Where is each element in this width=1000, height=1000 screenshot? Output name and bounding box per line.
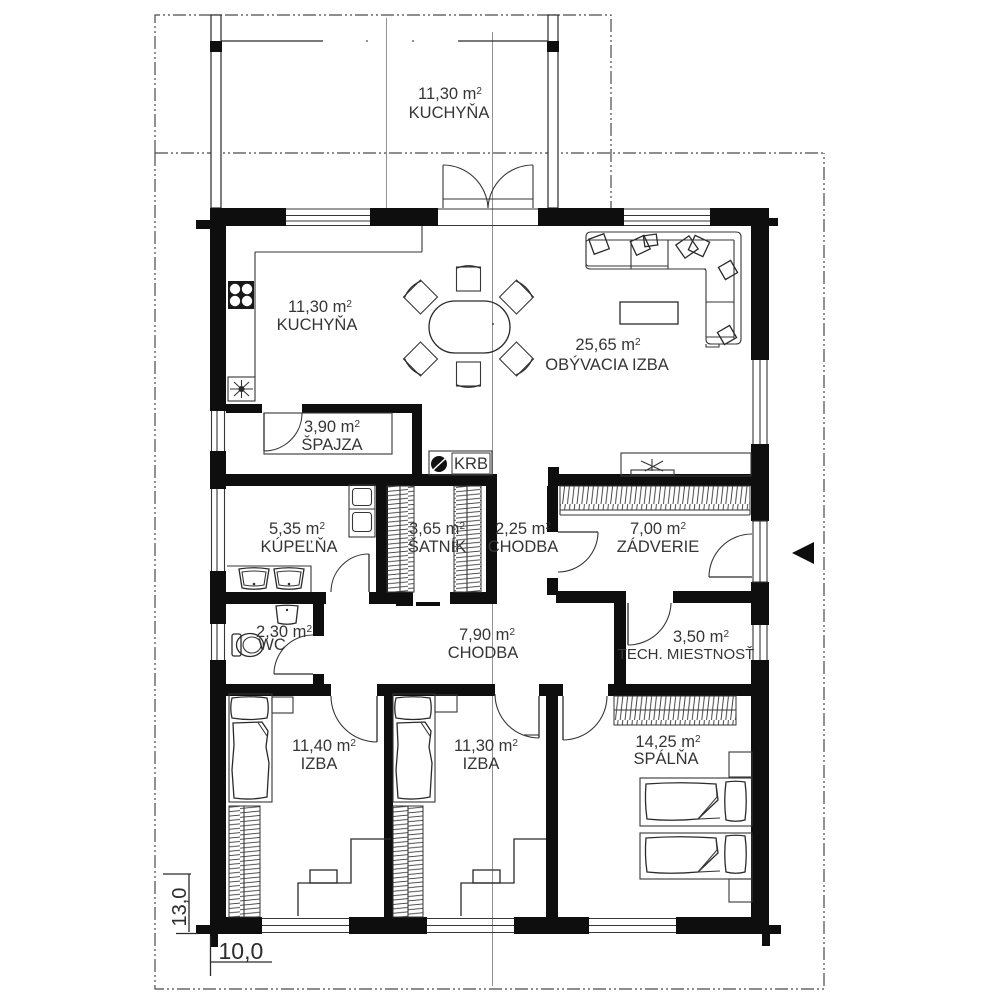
svg-text:3,90 m2: 3,90 m2 [304, 418, 360, 436]
svg-text:IZBA: IZBA [301, 755, 338, 773]
svg-text:11,40 m2: 11,40 m2 [292, 737, 356, 755]
svg-text:13,0: 13,0 [169, 888, 191, 927]
svg-text:11,30 m2: 11,30 m2 [454, 737, 518, 755]
svg-text:7,90 m2: 7,90 m2 [459, 626, 515, 644]
svg-text:3,65 m2: 3,65 m2 [409, 520, 465, 538]
svg-text:2,25 m2: 2,25 m2 [495, 520, 551, 538]
svg-text:KRB: KRB [454, 455, 488, 473]
svg-text:KUCHYŇA: KUCHYŇA [409, 103, 490, 122]
svg-text:3,50 m2: 3,50 m2 [673, 628, 729, 646]
svg-text:IZBA: IZBA [463, 755, 500, 773]
svg-text:CHODBA: CHODBA [488, 538, 559, 556]
svg-text:OBÝVACIA IZBA: OBÝVACIA IZBA [545, 355, 668, 374]
svg-text:7,00 m2: 7,00 m2 [630, 520, 686, 538]
svg-text:25,65 m2: 25,65 m2 [575, 336, 641, 354]
svg-text:SPÁLŇA: SPÁLŇA [633, 749, 698, 768]
svg-text:ZÁDVERIE: ZÁDVERIE [617, 537, 700, 556]
svg-text:KÚPEĽŇA: KÚPEĽŇA [260, 537, 337, 556]
svg-text:WC: WC [258, 636, 286, 654]
svg-text:11,30 m2: 11,30 m2 [288, 298, 352, 316]
svg-text:5,35 m2: 5,35 m2 [269, 520, 325, 538]
svg-text:14,25 m2: 14,25 m2 [635, 733, 701, 751]
svg-text:ŠPAJZA: ŠPAJZA [301, 435, 362, 454]
svg-text:KUCHYŇA: KUCHYŇA [277, 315, 358, 334]
svg-text:ŠATNÍK: ŠATNÍK [408, 537, 466, 556]
svg-text:CHODBA: CHODBA [448, 644, 519, 662]
svg-text:11,30 m2: 11,30 m2 [418, 85, 482, 103]
svg-text:TECH. MIESTNOSŤ: TECH. MIESTNOSŤ [618, 646, 755, 663]
svg-text:10,0: 10,0 [219, 938, 264, 964]
